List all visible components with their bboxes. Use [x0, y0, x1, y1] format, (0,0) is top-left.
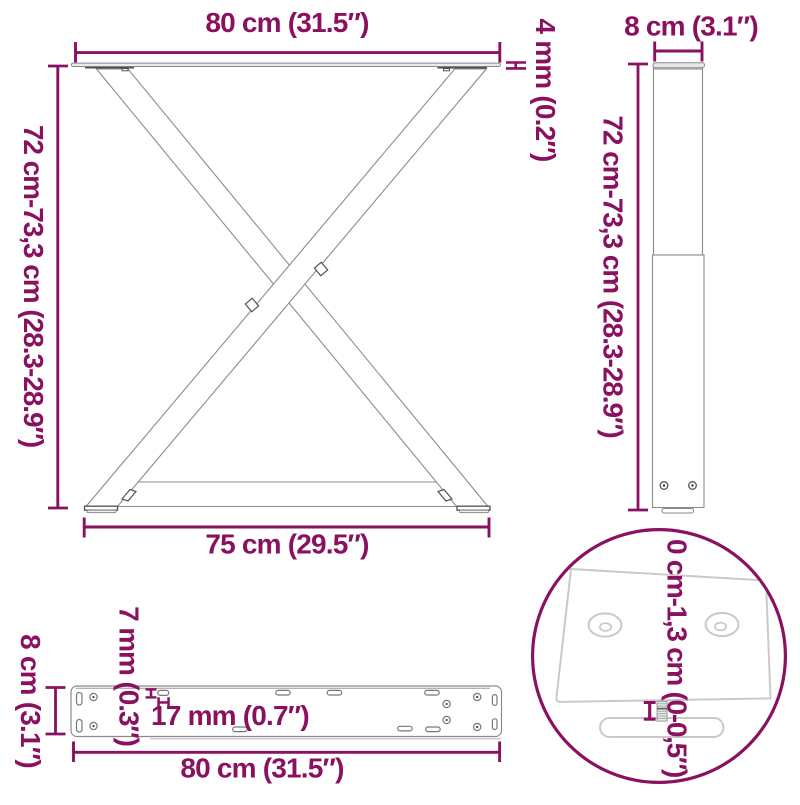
svg-text:8 cm (3.1″): 8 cm (3.1″)	[624, 11, 758, 42]
svg-text:72 cm-73,3 cm (28.3-28.9″): 72 cm-73,3 cm (28.3-28.9″)	[18, 125, 49, 447]
svg-text:72 cm-73,3 cm (28.3-28.9″): 72 cm-73,3 cm (28.3-28.9″)	[598, 115, 629, 437]
svg-text:4 mm (0.2″): 4 mm (0.2″)	[530, 18, 561, 161]
svg-text:17 mm (0.7″): 17 mm (0.7″)	[151, 700, 309, 731]
svg-text:80 cm (31.5″): 80 cm (31.5″)	[180, 753, 343, 784]
svg-text:7 mm (0.3″): 7 mm (0.3″)	[114, 606, 145, 746]
svg-text:8 cm (3.1″): 8 cm (3.1″)	[15, 634, 46, 768]
svg-text:80 cm (31.5″): 80 cm (31.5″)	[205, 7, 368, 38]
svg-text:75 cm (29.5″): 75 cm (29.5″)	[205, 529, 368, 560]
svg-text:0 cm-1,3 cm (0-0,5″): 0 cm-1,3 cm (0-0,5″)	[662, 539, 693, 777]
